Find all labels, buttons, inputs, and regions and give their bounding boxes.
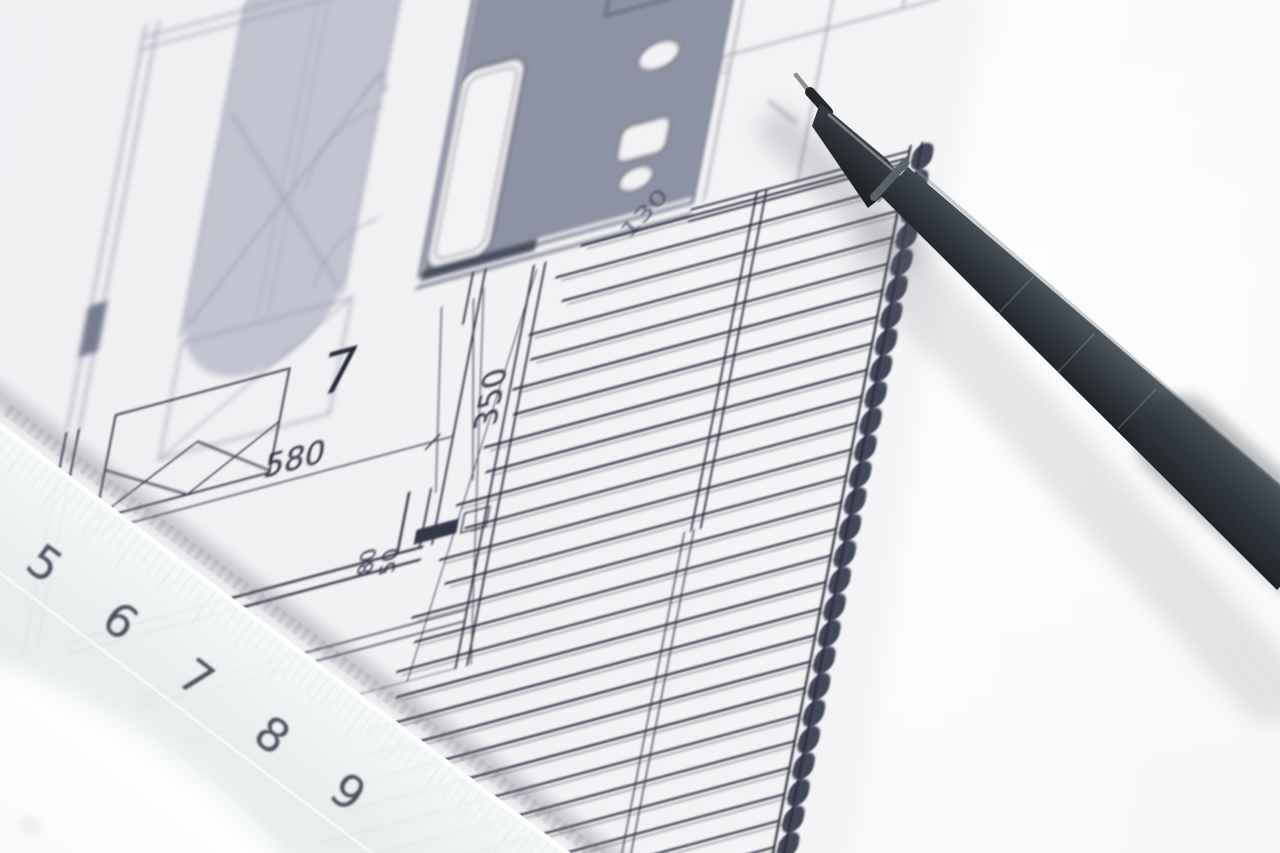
scene-canvas: 580 7 350 80 50 130 60 (0, 0, 1280, 853)
photo-scene: 580 7 350 80 50 130 60 (0, 0, 1280, 853)
